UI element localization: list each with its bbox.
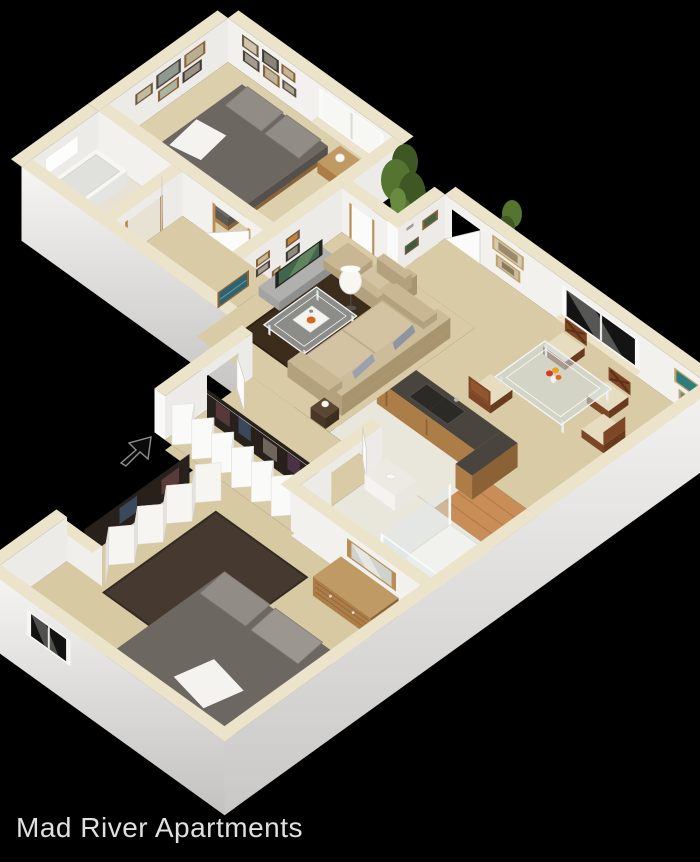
floor-plan-image: Mad River Apartments: [0, 0, 700, 862]
page-title: Mad River Apartments: [16, 812, 303, 844]
floor-plan-rendering: [0, 0, 700, 862]
